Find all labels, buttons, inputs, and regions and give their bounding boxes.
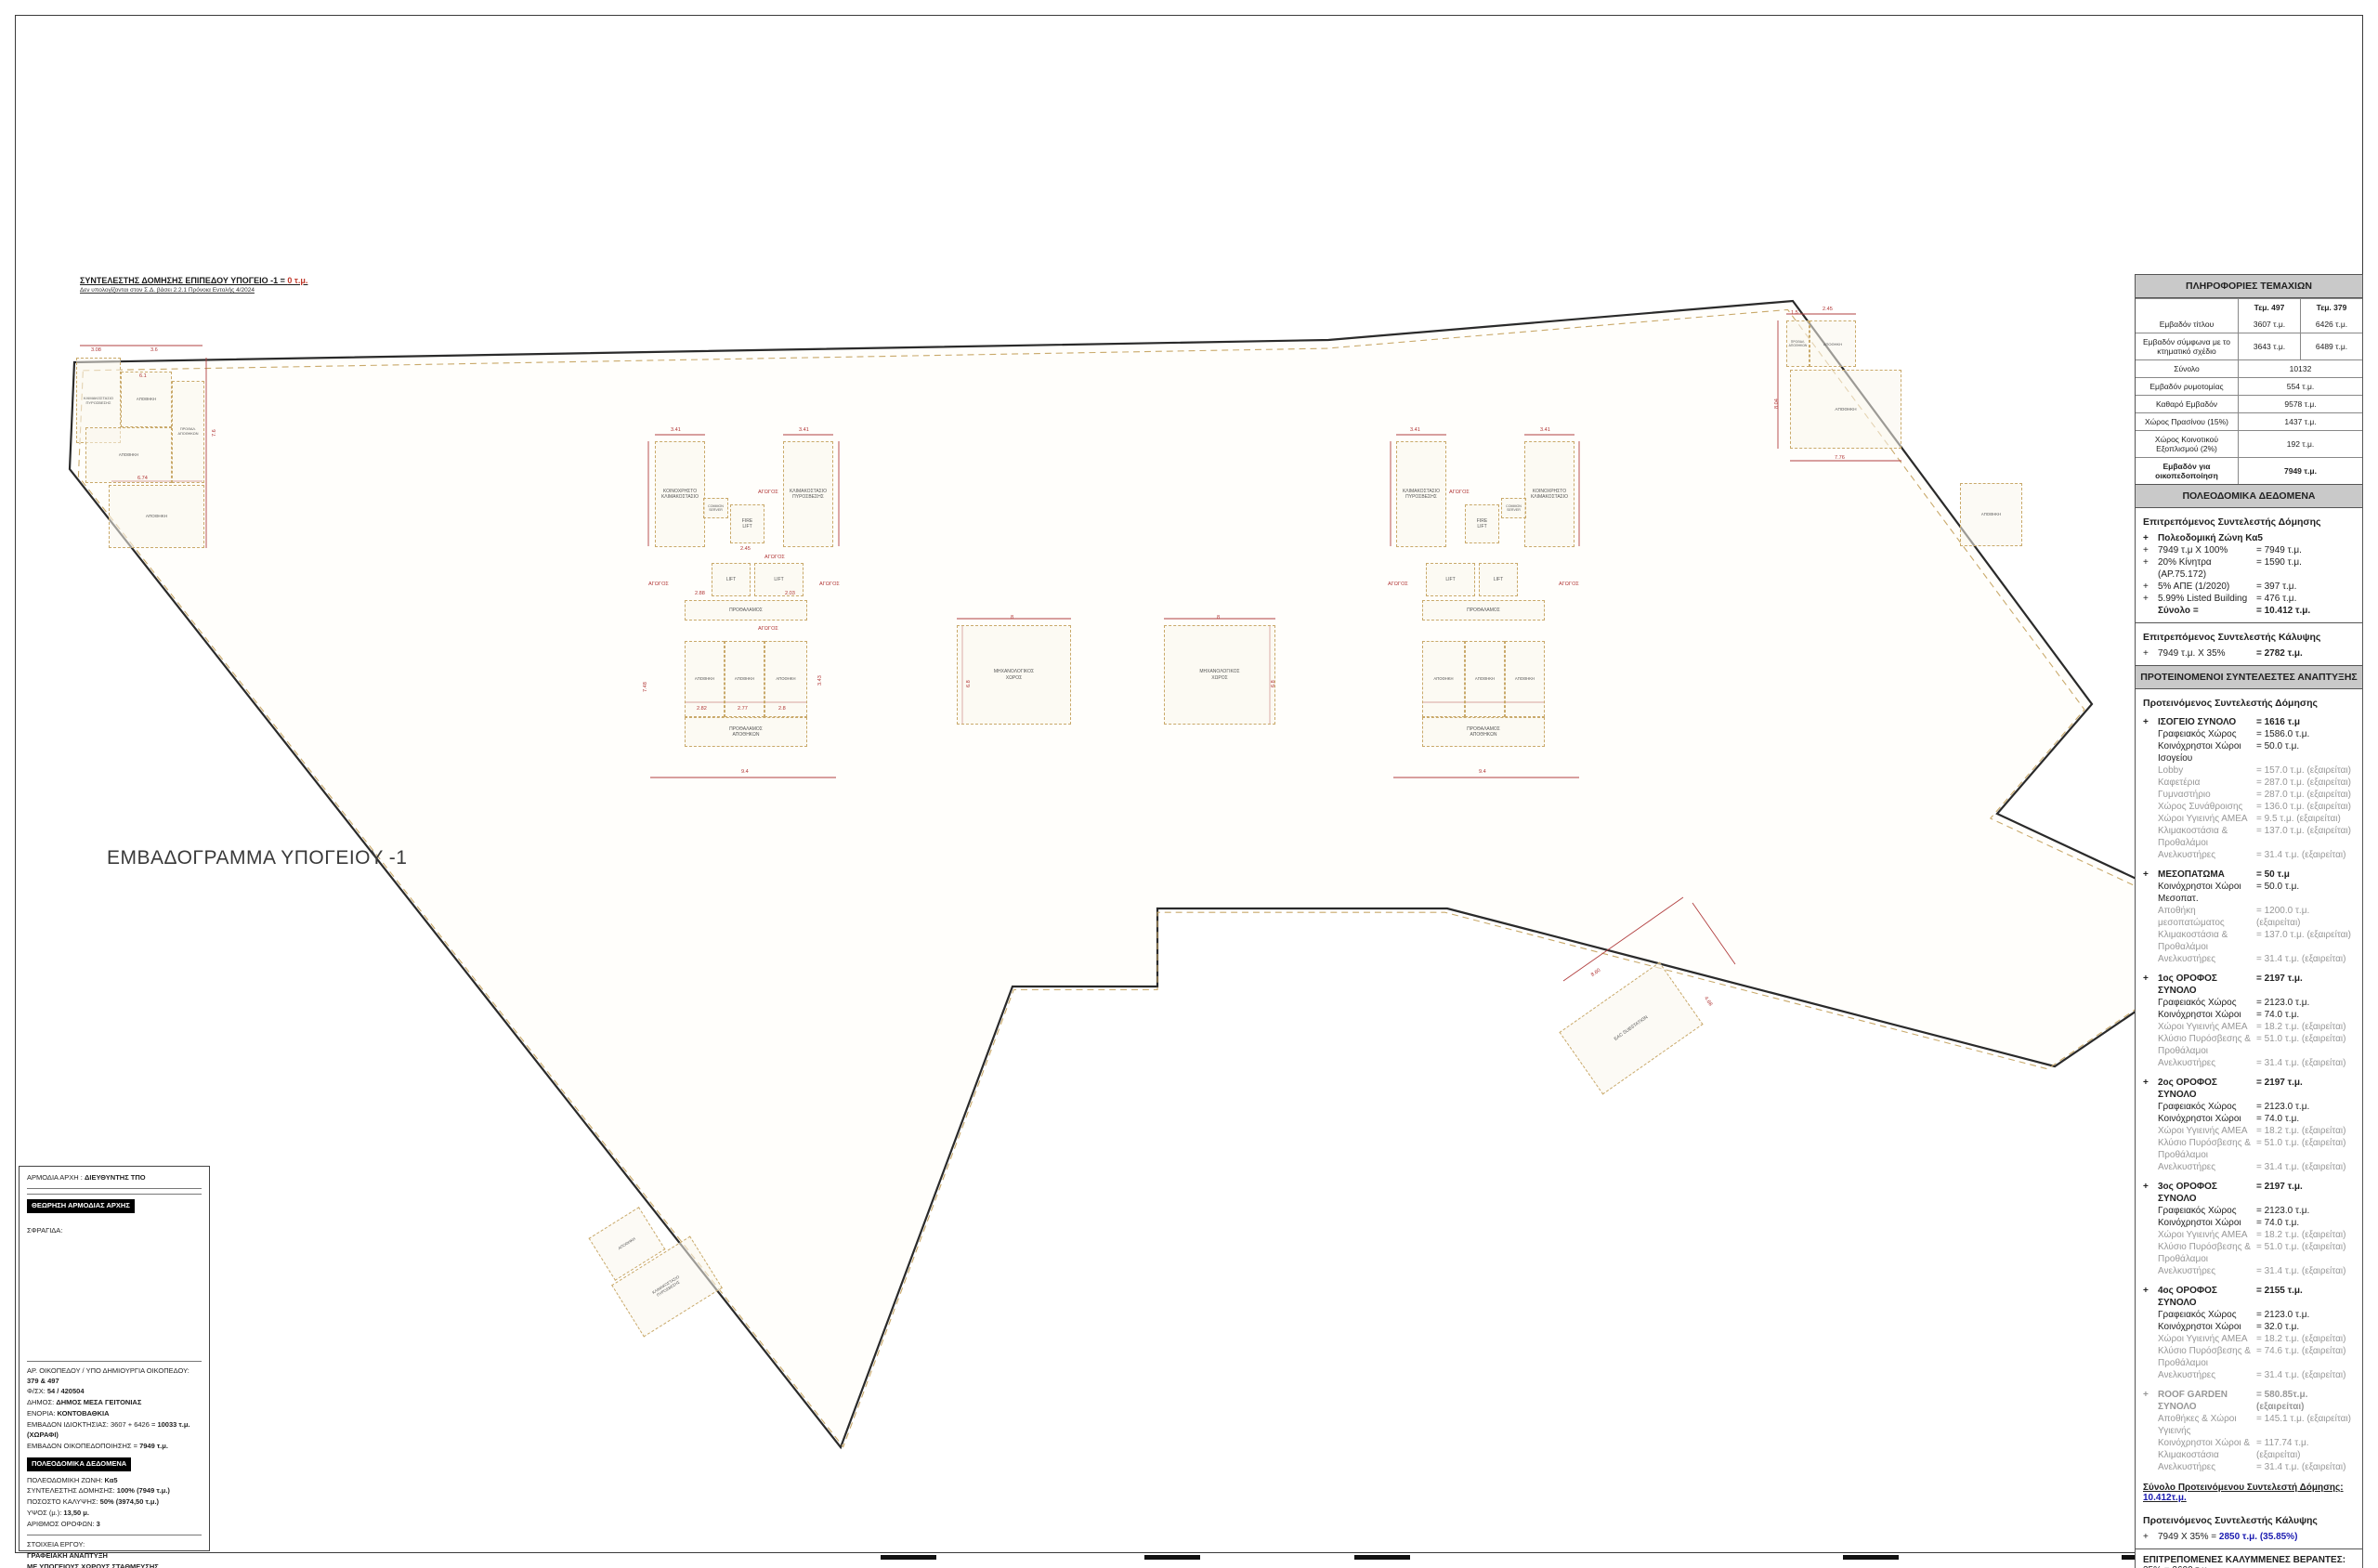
- floors-row: ΑΡΙΘΜΟΣ ΟΡΟΦΩΝ: 3: [27, 1520, 202, 1530]
- dim-label: 7.48: [643, 682, 648, 692]
- plan-room: ΠΡΟΘΑΛΑΜΟΣ: [1422, 600, 1545, 621]
- floor-sub-row: Γραφειακός Χώρος= 1586.0 τ.μ.: [2143, 728, 2355, 740]
- sub-label: Κοινόχρηστοι Χώροι: [2158, 1009, 2256, 1021]
- coeff-row: +7949 τ.μ Χ 100%= 7949 τ.μ.: [2143, 544, 2355, 556]
- sub-label: Κλύσιο Πυρόσβεσης & Προθάλαμοι: [2158, 1345, 2256, 1369]
- indent: [2143, 1265, 2158, 1277]
- sub-label: Κλιμακοστάσια & Προθαλάμοι: [2158, 825, 2256, 849]
- sub-label: Ανελκυστήρες: [2158, 1057, 2256, 1069]
- sub-label: Χώρος Συνάθροισης: [2158, 801, 2256, 813]
- height-row: ΥΨΟΣ (μ.): 13,50 μ.: [27, 1509, 202, 1519]
- coeff-label: 5% ΑΠΕ (1/2020): [2158, 581, 2256, 593]
- dim-label: 6.8: [966, 680, 972, 687]
- table-row: Καθαρό Εμβαδόν9578 τ.μ.: [2136, 395, 2362, 412]
- row-value-1: 3607 τ.μ.: [2239, 316, 2301, 333]
- plus-mark: +: [2143, 593, 2158, 605]
- plan-room: ΠΡΟΘΑΛ. ΑΠΟΘΗΚΩΝ: [1786, 320, 1810, 367]
- urban-rows: +7949 τ.μ Χ 100%= 7949 τ.μ.+20% Κίνητρα …: [2143, 544, 2355, 605]
- row-value-1: 3643 τ.μ.: [2239, 333, 2301, 359]
- sub-value: = 74.0 τ.μ.: [2256, 1113, 2355, 1125]
- proposed-coverage-title: Προτεινόμενος Συντελεστής Κάλυψης: [2143, 1515, 2355, 1526]
- plus-mark: +: [2143, 581, 2158, 593]
- floor-label: ROOF GARDEN ΣΥΝΟΛΟ: [2158, 1389, 2256, 1413]
- sub-value: = 145.1 τ.μ. (εξαιρείται): [2256, 1413, 2355, 1437]
- indent: [2143, 1205, 2158, 1217]
- floor-sub-row: Κοινόχρηστοι Χώροι= 74.0 τ.μ.: [2143, 1113, 2355, 1125]
- plan-room: ΑΠΟΘΗΚΗ: [1505, 641, 1545, 717]
- floor-sub-row: Κοινόχρηστοι Χώροι & Κλιμακοστάσια= 117.…: [2143, 1437, 2355, 1461]
- allowed-verandas-title: ΕΠΙΤΡΕΠΟΜΕΝΕΣ ΚΑΛΥΜΜΕΝΕΣ ΒΕΡΑΝΤΕΣ:: [2143, 1555, 2355, 1565]
- dim-label: ΑΓΩΓΟΣ: [764, 555, 785, 560]
- sub-value: = 31.4 τ.μ. (εξαιρείται): [2256, 1461, 2355, 1473]
- dim-label: 2.8: [778, 706, 786, 712]
- floor-sub-row: Γραφειακός Χώρος= 2123.0 τ.μ.: [2143, 997, 2355, 1009]
- proposed-coeff-header: ΠΡΟΤΕΙΝΟΜΕΝΟΙ ΣΥΝΤΕΛΕΣΤΕΣ ΑΝΑΠΤΥΞΗΣ: [2136, 666, 2362, 689]
- parcel-info-section: ΠΛΗΡΟΦΟΡΙΕΣ ΤΕΜΑΧΙΩΝ Τεμ. 497 Τεμ. 379 Ε…: [2135, 274, 2363, 485]
- floor-group: +3ος ΟΡΟΦΟΣ ΣΥΝΟΛΟ= 2197 τ.μ.Γραφειακός …: [2143, 1181, 2355, 1277]
- floor-label: 4ος ΟΡΟΦΟΣ ΣΥΝΟΛΟ: [2158, 1285, 2256, 1309]
- indent: [2143, 1413, 2158, 1437]
- floor-group-header: +ROOF GARDEN ΣΥΝΟΛΟ= 580.85τ.μ. (εξαιρεί…: [2143, 1389, 2355, 1413]
- sub-label: Χώροι Υγιεινής ΑΜΕΑ: [2158, 1021, 2256, 1033]
- plan-room: ΑΠΟΘΗΚΗ: [1960, 483, 2022, 546]
- floor-sub-row: Κοινόχρηστοι Χώροι= 74.0 τ.μ.: [2143, 1217, 2355, 1229]
- floor-sub-row: Κοινόχρηστοι Χώροι Ισογείου= 50.0 τ.μ.: [2143, 740, 2355, 764]
- dim-label: ΑΓΩΓΟΣ: [1559, 581, 1579, 587]
- indent: [2143, 997, 2158, 1009]
- table-row: Χώρος Πρασίνου (15%)1437 τ.μ.: [2136, 412, 2362, 430]
- dim-label: 8.04: [1774, 399, 1780, 409]
- plan-room: COMMON SERVER: [1501, 498, 1526, 518]
- coeff-value: = 1590 τ.μ.: [2256, 556, 2355, 581]
- floor-label: ΜΕΣΟΠΑΤΩΜΑ: [2158, 869, 2256, 881]
- plan-room: ΚΟΙΝΟΧΡΗΣΤΟ ΚΛΙΜΑΚΟΣΤΑΣΙΟ: [1524, 441, 1574, 547]
- zone-row: +Πολεοδομική Ζώνη Κα5: [2143, 532, 2355, 544]
- floor-group-header: +2ος ΟΡΟΦΟΣ ΣΥΝΟΛΟ= 2197 τ.μ.: [2143, 1077, 2355, 1101]
- sub-value: = 1586.0 τ.μ.: [2256, 728, 2355, 740]
- coeff-label: 5.99% Listed Building: [2158, 593, 2256, 605]
- row-label: Χώρος Πρασίνου (15%): [2136, 413, 2239, 430]
- sub-value: = 74.6 τ.μ. (εξαιρείται): [2256, 1345, 2355, 1369]
- sub-value: = 31.4 τ.μ. (εξαιρείται): [2256, 1265, 2355, 1277]
- dim-label: 9.4: [741, 769, 749, 775]
- indent: [2143, 1321, 2158, 1333]
- urban-data-header: ΠΟΛΕΟΔΟΜΙΚΑ ΔΕΔΟΜΕΝΑ: [2136, 485, 2362, 508]
- dim-label: 2.77: [738, 706, 748, 712]
- dim-label: 3.6: [150, 347, 158, 353]
- table-row: Εμβαδόν σύμφωνα με το κτηματικό σχέδιο36…: [2136, 333, 2362, 359]
- indent: [2143, 728, 2158, 740]
- row-value-2: 6426 τ.μ.: [2301, 316, 2362, 333]
- sub-label: Κοινόχρηστοι Χώροι: [2158, 1321, 2256, 1333]
- floor-label: 3ος ΟΡΟΦΟΣ ΣΥΝΟΛΟ: [2158, 1181, 2256, 1205]
- sub-value: = 287.0 τ.μ. (εξαιρείται): [2256, 777, 2355, 789]
- sub-value: = 51.0 τ.μ. (εξαιρείται): [2256, 1137, 2355, 1161]
- floor-total: = 2197 τ.μ.: [2256, 973, 2355, 997]
- indent: [2143, 1161, 2158, 1173]
- dim-label: 8: [1217, 615, 1220, 621]
- dim-label: 1.5: [1791, 310, 1798, 316]
- sub-label: Γραφειακός Χώρος: [2158, 728, 2256, 740]
- floor-sub-row: Κλύσιο Πυρόσβεσης & Προθάλαμοι= 51.0 τ.μ…: [2143, 1241, 2355, 1265]
- row-value: 7949 τ.μ.: [2239, 458, 2362, 484]
- indent: [2143, 801, 2158, 813]
- coeff-label: 20% Κίνητρα (ΑΡ.75.172): [2158, 556, 2256, 581]
- floor-total: = 1616 τ.μ: [2256, 716, 2355, 728]
- dim-label: ΑΓΩΓΟΣ: [1388, 581, 1408, 587]
- plus-mark: +: [2143, 869, 2158, 881]
- floor-group-header: +ΙΣΟΓΕΙΟ ΣΥΝΟΛΟ= 1616 τ.μ: [2143, 716, 2355, 728]
- indent: [2143, 1333, 2158, 1345]
- floor-group: +ΜΕΣΟΠΑΤΩΜΑ= 50 τ.μΚοινόχρηστοι Χώροι Με…: [2143, 869, 2355, 965]
- sub-label: Χώροι Υγιεινής ΑΜΕΑ: [2158, 1125, 2256, 1137]
- plus-mark: +: [2143, 1181, 2158, 1205]
- dim-label: 6.8: [1271, 680, 1276, 687]
- coeff-label: 7949 τ.μ Χ 100%: [2158, 544, 2256, 556]
- col-tem-497: Τεμ. 497: [2239, 299, 2301, 316]
- sub-label: Χώροι Υγιεινής ΑΜΕΑ: [2158, 1229, 2256, 1241]
- floor-sub-row: Ανελκυστήρες= 31.4 τ.μ. (εξαιρείται): [2143, 1369, 2355, 1381]
- indent: [2143, 1241, 2158, 1265]
- row-value: 192 τ.μ.: [2239, 431, 2362, 457]
- floor-group-header: +1ος ΟΡΟΦΟΣ ΣΥΝΟΛΟ= 2197 τ.μ.: [2143, 973, 2355, 997]
- floor-sub-row: Ανελκυστήρες= 31.4 τ.μ. (εξαιρείται): [2143, 849, 2355, 861]
- floor-total: = 2197 τ.μ.: [2256, 1077, 2355, 1101]
- title-block: ΑΡΜΟΔΙΑ ΑΡΧΗ : ΔΙΕΥΘΥΝΤΗΣ ΤΠΟ ΘΕΩΡΗΣΗ ΑΡ…: [19, 1166, 210, 1551]
- sub-label: Γυμναστήριο: [2158, 789, 2256, 801]
- table-row: Εμβαδόν ρυμοτομίας554 τ.μ.: [2136, 377, 2362, 395]
- plan-room: LIFT: [712, 563, 751, 596]
- parcel-table-colheads: Τεμ. 497 Τεμ. 379: [2136, 298, 2362, 316]
- plan-room: ΑΠΟΘΗΚΗ: [1465, 641, 1505, 717]
- plan-room: ΠΡΟΘΑΛΑΜΟΣ: [685, 600, 807, 621]
- municipality-row: ΔΗΜΟΣ: ΔΗΜΟΣ ΜΕΣΑ ΓΕΙΤΟΝΙΑΣ: [27, 1398, 202, 1408]
- fold-mark: [881, 1555, 936, 1560]
- sub-value: = 9.5 τ.μ. (εξαιρείται): [2256, 813, 2355, 825]
- row-value: 554 τ.μ.: [2239, 378, 2362, 395]
- sub-label: Ανελκυστήρες: [2158, 1461, 2256, 1473]
- indent: [2143, 1137, 2158, 1161]
- coeff-row: +5% ΑΠΕ (1/2020)= 397 τ.μ.: [2143, 581, 2355, 593]
- proposed-coeff-section: ΠΡΟΤΕΙΝΟΜΕΝΟΙ ΣΥΝΤΕΛΕΣΤΕΣ ΑΝΑΠΤΥΞΗΣ Προτ…: [2135, 665, 2363, 1549]
- indent: [2143, 1309, 2158, 1321]
- floor-sub-row: Κλύσιο Πυρόσβεσης & Προθάλαμοι= 74.6 τ.μ…: [2143, 1345, 2355, 1369]
- plan-room: ΠΡΟΘΑΛΑΜΟΣ ΑΠΟΘΗΚΩΝ: [685, 717, 807, 747]
- urban-total-row: Σύνολο = = 10.412 τ.μ.: [2143, 605, 2355, 617]
- sub-value: = 50.0 τ.μ.: [2256, 740, 2355, 764]
- indent: [2143, 1033, 2158, 1057]
- dim-label: 7.6: [212, 429, 217, 437]
- indent: [2143, 1437, 2158, 1461]
- indent: [2143, 1461, 2158, 1473]
- info-panel: ΠΛΗΡΟΦΟΡΙΕΣ ΤΕΜΑΧΙΩΝ Τεμ. 497 Τεμ. 379 Ε…: [2135, 275, 2363, 1568]
- dim-label: 3.08: [91, 347, 101, 353]
- sub-value: = 137.0 τ.μ. (εξαιρείται): [2256, 825, 2355, 849]
- floor-groups: +ΙΣΟΓΕΙΟ ΣΥΝΟΛΟ= 1616 τ.μΓραφειακός Χώρο…: [2143, 716, 2355, 1473]
- plan-room: FIRE LIFT: [730, 504, 764, 543]
- sub-value: = 117.74 τ.μ. (εξαιρείται): [2256, 1437, 2355, 1461]
- dim-label: ΑΓΩΓΟΣ: [648, 581, 669, 587]
- sub-value: = 2123.0 τ.μ.: [2256, 997, 2355, 1009]
- indent: [2143, 825, 2158, 849]
- floor-sub-row: Ανελκυστήρες= 31.4 τ.μ. (εξαιρείται): [2143, 1265, 2355, 1277]
- coeff-row: ΣΥΝΤΕΛΕΣΤΗΣ ΔΟΜΗΣΗΣ: 100% (7949 τ.μ.): [27, 1486, 202, 1496]
- plan-room: ΑΠΟΘΗΚΗ: [1422, 641, 1465, 717]
- table-row: Εμβαδόν για οικοπεδοποίηση7949 τ.μ.: [2136, 457, 2362, 484]
- ownership-area-row: ΕΜΒΑΔΟΝ ΙΔΙΟΚΤΗΣΙΑΣ: 3607 + 6426 = 10033…: [27, 1420, 202, 1441]
- row-label: Σύνολο: [2136, 360, 2239, 377]
- verandas-section: ΕΠΙΤΡΕΠΟΜΕΝΕΣ ΚΑΛΥΜΜΕΝΕΣ ΒΕΡΑΝΤΕΣ: 25% =…: [2135, 1548, 2363, 1568]
- floor-sub-row: Αποθήκη μεσοπατώματος= 1200.0 τ.μ. (εξαι…: [2143, 905, 2355, 929]
- floor-sub-row: Χώροι Υγιεινής ΑΜΕΑ= 18.2 τ.μ. (εξαιρείτ…: [2143, 1229, 2355, 1241]
- floor-group: +ΙΣΟΓΕΙΟ ΣΥΝΟΛΟ= 1616 τ.μΓραφειακός Χώρο…: [2143, 716, 2355, 861]
- floor-sub-row: Κλιμακοστάσια & Προθαλάμοι= 137.0 τ.μ. (…: [2143, 825, 2355, 849]
- plot-row: ΑΡ. ΟΙΚΟΠΕΔΟΥ / ΥΠΟ ΔΗΜΙΟΥΡΓΙΑ ΟΙΚΟΠΕΔΟΥ…: [27, 1366, 202, 1387]
- indent: [2143, 1101, 2158, 1113]
- plan-room: ΑΠΟΘΗΚΗ: [764, 641, 807, 717]
- note-zero-value: 0 τ.μ.: [287, 276, 307, 285]
- dim-label: 2.45: [740, 546, 751, 552]
- indent: [2143, 1057, 2158, 1069]
- sub-value: = 136.0 τ.μ. (εξαιρείται): [2256, 801, 2355, 813]
- sub-value: = 157.0 τ.μ. (εξαιρείται): [2256, 764, 2355, 777]
- sub-value: = 18.2 τ.μ. (εξαιρείται): [2256, 1229, 2355, 1241]
- plan-room: ΚΛΙΜΑΚΟΣΤΑΣΙΟ ΠΥΡΟΣΒΕΣΗΣ: [783, 441, 833, 547]
- sub-label: Κοινόχρηστοι Χώροι Ισογείου: [2158, 740, 2256, 764]
- dim-label: 3.43: [817, 675, 823, 686]
- dim-label: 2.82: [697, 706, 707, 712]
- floor-total: = 2155 τ.μ.: [2256, 1285, 2355, 1309]
- allowed-coverage-section: Επιτρεπόμενος Συντελεστής Κάλυψης + 7949…: [2135, 622, 2363, 666]
- plan-room: ΑΠΟΘΗΚΗ: [109, 485, 204, 548]
- table-row: Σύνολο10132: [2136, 359, 2362, 377]
- site-boundary: [70, 301, 2252, 1447]
- sub-value: = 31.4 τ.μ. (εξαιρείται): [2256, 1161, 2355, 1173]
- stamp-label: ΣΦΡΑΓΙΔΑ:: [27, 1226, 202, 1236]
- row-value: 10132: [2239, 360, 2362, 377]
- floor-total: = 50 τ.μ: [2256, 869, 2355, 881]
- floor-group: +ROOF GARDEN ΣΥΝΟΛΟ= 580.85τ.μ. (εξαιρεί…: [2143, 1389, 2355, 1473]
- indent: [2143, 1113, 2158, 1125]
- table-row: Χώρος Κοινοτικού Εξοπλισμού (2%)192 τ.μ.: [2136, 430, 2362, 457]
- indent: [2143, 1345, 2158, 1369]
- drawing-sheet: ΚΟΙΝΟΧΡΗΣΤΟ ΚΛΙΜΑΚΟΣΤΑΣΙΟΚΛΙΜΑΚΟΣΤΑΣΙΟ Π…: [0, 0, 2378, 1568]
- plan-room: ΠΡΟΘΑΛΑΜΟΣ ΑΠΟΘΗΚΩΝ: [1422, 717, 1545, 747]
- indent: [2143, 1009, 2158, 1021]
- sub-value: = 51.0 τ.μ. (εξαιρείται): [2256, 1241, 2355, 1265]
- sub-label: Καφετέρια: [2158, 777, 2256, 789]
- note-line2: Δεν υπολογίζονται στον Σ.Δ. βάσει 2.2.1 …: [80, 287, 307, 294]
- urban-data-bar: ΠΟΛΕΟΔΟΜΙΚΑ ΔΕΔΟΜΕΝΑ: [27, 1457, 131, 1471]
- indent: [2143, 1125, 2158, 1137]
- drawing-title: ΕΜΒΑΔΟΓΡΑΜΜΑ ΥΠΟΓΕΙΟΥ -1: [107, 847, 407, 869]
- floor-sub-row: Ανελκυστήρες= 31.4 τ.μ. (εξαιρείται): [2143, 1057, 2355, 1069]
- coeff-value: = 7949 τ.μ.: [2256, 544, 2355, 556]
- sub-value: = 1200.0 τ.μ. (εξαιρείται): [2256, 905, 2355, 929]
- floor-group: +2ος ΟΡΟΦΟΣ ΣΥΝΟΛΟ= 2197 τ.μ.Γραφειακός …: [2143, 1077, 2355, 1173]
- indent: [2143, 849, 2158, 861]
- sub-label: Γραφειακός Χώρος: [2158, 1101, 2256, 1113]
- proposed-total-row: Σύνολο Προτεινόμενου Συντελεστή Δόμησης:…: [2143, 1483, 2355, 1503]
- floor-sub-row: Κλιμακοστάσια & Προθαλάμοι= 137.0 τ.μ. (…: [2143, 929, 2355, 953]
- plan-room: LIFT: [754, 563, 804, 596]
- plus-mark: +: [2143, 1389, 2158, 1413]
- sub-value: = 2123.0 τ.μ.: [2256, 1309, 2355, 1321]
- sub-label: Κλύσιο Πυρόσβεσης & Προθάλαμοι: [2158, 1137, 2256, 1161]
- sub-label: Κοινόχρηστοι Χώροι: [2158, 1217, 2256, 1229]
- plan-room: COMMON SERVER: [703, 498, 728, 518]
- floor-total: = 580.85τ.μ. (εξαιρείται): [2256, 1389, 2355, 1413]
- sub-label: Γραφειακός Χώρος: [2158, 1309, 2256, 1321]
- floor-group-header: +4ος ΟΡΟΦΟΣ ΣΥΝΟΛΟ= 2155 τ.μ.: [2143, 1285, 2355, 1309]
- dim-label: 3.41: [671, 427, 681, 433]
- floor-group: +1ος ΟΡΟΦΟΣ ΣΥΝΟΛΟ= 2197 τ.μ.Γραφειακός …: [2143, 973, 2355, 1069]
- sub-label: Αποθήκες & Χώροι Υγιεινής: [2158, 1413, 2256, 1437]
- sub-label: Κοινόχρηστοι Χώροι: [2158, 1113, 2256, 1125]
- plan-room: FIRE LIFT: [1465, 504, 1499, 543]
- sub-label: Ανελκυστήρες: [2158, 1369, 2256, 1381]
- dim-label: 3.41: [799, 427, 809, 433]
- floor-sub-row: Κλύσιο Πυρόσβεσης & Προθάλαμοι= 51.0 τ.μ…: [2143, 1137, 2355, 1161]
- floor-sub-row: Κοινόχρηστοι Χώροι= 32.0 τ.μ.: [2143, 1321, 2355, 1333]
- indent: [2143, 777, 2158, 789]
- sub-value: = 31.4 τ.μ. (εξαιρείται): [2256, 953, 2355, 965]
- fsx-row: Φ/ΣΧ: 54 / 420504: [27, 1387, 202, 1397]
- plan-room: LIFT: [1426, 563, 1475, 596]
- row-label: Καθαρό Εμβαδόν: [2136, 396, 2239, 412]
- row-label: Εμβαδόν σύμφωνα με το κτηματικό σχέδιο: [2136, 333, 2239, 359]
- sub-label: Χώροι Υγιεινής ΑΜΕΑ: [2158, 813, 2256, 825]
- floor-sub-row: Κοινόχρηστοι Χώροι= 74.0 τ.μ.: [2143, 1009, 2355, 1021]
- allowed-building-coeff-title: Επιτρεπόμενος Συντελεστής Δόμησης: [2143, 516, 2355, 528]
- plan-room: ΑΠΟΘΗΚΗ: [1810, 320, 1856, 367]
- sub-label: Χώροι Υγιεινής ΑΜΕΑ: [2158, 1333, 2256, 1345]
- floor-sub-row: Χώροι Υγιεινής ΑΜΕΑ= 18.2 τ.μ. (εξαιρείτ…: [2143, 1333, 2355, 1345]
- indent: [2143, 929, 2158, 953]
- coverage-row: ΠΟΣΟΣΤΟ ΚΑΛΥΨΗΣ: 50% (3974,50 τ.μ.): [27, 1497, 202, 1508]
- plan-room: LIFT: [1479, 563, 1518, 596]
- plan-room: ΜΗΧΑΝΟΛΟΓΙΚΟΣ ΧΩΡΟΣ: [957, 625, 1071, 725]
- coeff-row: +5.99% Listed Building= 476 τ.μ.: [2143, 593, 2355, 605]
- indent: [2143, 1229, 2158, 1241]
- sub-value: = 18.2 τ.μ. (εξαιρείται): [2256, 1333, 2355, 1345]
- allowed-coverage-title: Επιτρεπόμενος Συντελεστής Κάλυψης: [2143, 632, 2355, 643]
- sub-value: = 31.4 τ.μ. (εξαιρείται): [2256, 1057, 2355, 1069]
- floor-sub-row: Κοινόχρηστοι Χώροι Μεσοπατ.= 50.0 τ.μ.: [2143, 881, 2355, 905]
- sub-label: Lobby: [2158, 764, 2256, 777]
- indent: [2143, 789, 2158, 801]
- sub-label: Κλύσιο Πυρόσβεσης & Προθάλαμοι: [2158, 1033, 2256, 1057]
- floor-total: = 2197 τ.μ.: [2256, 1181, 2355, 1205]
- row-label: Εμβαδόν για οικοπεδοποίηση: [2136, 458, 2239, 484]
- proposed-coverage-row: + 7949 Χ 35% = 2850 τ.μ. (35.85%): [2143, 1531, 2355, 1543]
- parish-row: ΕΝΟΡΙΑ: ΚΟΝΤΟΒΑΘΚΙΑ: [27, 1409, 202, 1419]
- fold-mark: [1354, 1555, 1410, 1560]
- row-label: Εμβαδόν ρυμοτομίας: [2136, 378, 2239, 395]
- floor-sub-row: Καφετέρια= 287.0 τ.μ. (εξαιρείται): [2143, 777, 2355, 789]
- dim-label: ΑΓΩΓΟΣ: [1449, 490, 1470, 495]
- dim-label: ΑΓΩΓΟΣ: [758, 626, 778, 632]
- indent: [2143, 1369, 2158, 1381]
- plan-room: ΜΗΧΑΝΟΛΟΓΙΚΟΣ ΧΩΡΟΣ: [1164, 625, 1275, 725]
- plus-mark: +: [2143, 556, 2158, 581]
- floor-sub-row: Χώρος Συνάθροισης= 136.0 τ.μ. (εξαιρείτα…: [2143, 801, 2355, 813]
- note-line1: ΣΥΝΤΕΛΕΣΤΗΣ ΔΟΜΗΣΗΣ ΕΠΙΠΕΔΟΥ ΥΠΟΓΕΙΟ -1 …: [80, 276, 307, 285]
- plot-area-row: ΕΜΒΑΔΟΝ ΟΙΚΟΠΕΔΟΠΟΙΗΣΗΣ = 7949 τ.μ.: [27, 1442, 202, 1452]
- floor-label: 1ος ΟΡΟΦΟΣ ΣΥΝΟΛΟ: [2158, 973, 2256, 997]
- plus-mark: +: [2143, 544, 2158, 556]
- sub-value: = 2123.0 τ.μ.: [2256, 1205, 2355, 1217]
- dim-label: 2.45: [1823, 307, 1833, 312]
- sub-label: Κοινόχρηστοι Χώροι Μεσοπατ.: [2158, 881, 2256, 905]
- sub-label: Κοινόχρηστοι Χώροι & Κλιμακοστάσια: [2158, 1437, 2256, 1461]
- indent: [2143, 1021, 2158, 1033]
- floor-sub-row: Ανελκυστήρες= 31.4 τ.μ. (εξαιρείται): [2143, 953, 2355, 965]
- sub-value: = 51.0 τ.μ. (εξαιρείται): [2256, 1033, 2355, 1057]
- sub-label: Γραφειακός Χώρος: [2158, 997, 2256, 1009]
- floor-sub-row: Γραφειακός Χώρος= 2123.0 τ.μ.: [2143, 1101, 2355, 1113]
- dim-label: 6.74: [137, 476, 148, 481]
- floor-sub-row: Αποθήκες & Χώροι Υγιεινής= 145.1 τ.μ. (ε…: [2143, 1413, 2355, 1437]
- allowed-coverage-row: + 7949 τ.μ. Χ 35% = 2782 τ.μ.: [2143, 647, 2355, 660]
- sub-value: = 74.0 τ.μ.: [2256, 1217, 2355, 1229]
- urban-data-section: ΠΟΛΕΟΔΟΜΙΚΑ ΔΕΔΟΜΕΝΑ Επιτρεπόμενος Συντε…: [2135, 484, 2363, 623]
- fold-mark: [1843, 1555, 1899, 1560]
- coeff-value: = 397 τ.μ.: [2256, 581, 2355, 593]
- dim-label: 2.03: [785, 591, 795, 596]
- indent: [2143, 764, 2158, 777]
- sub-value: = 18.2 τ.μ. (εξαιρείται): [2256, 1125, 2355, 1137]
- table-row: Εμβαδόν τίτλου3607 τ.μ.6426 τ.μ.: [2136, 316, 2362, 333]
- sub-value: = 2123.0 τ.μ.: [2256, 1101, 2355, 1113]
- coeff-row: +20% Κίνητρα (ΑΡ.75.172)= 1590 τ.μ.: [2143, 556, 2355, 581]
- sub-value: = 31.4 τ.μ. (εξαιρείται): [2256, 1369, 2355, 1381]
- plus-mark: +: [2143, 716, 2158, 728]
- floor-sub-row: Γραφειακός Χώρος= 2123.0 τ.μ.: [2143, 1309, 2355, 1321]
- dim-label: 7.76: [1835, 455, 1845, 461]
- floor-group-header: +ΜΕΣΟΠΑΤΩΜΑ= 50 τ.μ: [2143, 869, 2355, 881]
- floor-sub-row: Lobby= 157.0 τ.μ. (εξαιρείται): [2143, 764, 2355, 777]
- dim-label: ΑΓΩΓΟΣ: [758, 490, 778, 495]
- floor-group-header: +3ος ΟΡΟΦΟΣ ΣΥΝΟΛΟ= 2197 τ.μ.: [2143, 1181, 2355, 1205]
- plan-room: ΚΟΙΝΟΧΡΗΣΤΟ ΚΛΙΜΑΚΟΣΤΑΣΙΟ: [655, 441, 705, 547]
- floor-sub-row: Χώροι Υγιεινής ΑΜΕΑ= 18.2 τ.μ. (εξαιρείτ…: [2143, 1021, 2355, 1033]
- sub-label: Ανελκυστήρες: [2158, 953, 2256, 965]
- dim-label: 6.1: [139, 373, 147, 379]
- plan-room: ΠΡΟΘΑΛ. ΑΠΟΘΗΚΩΝ: [172, 381, 204, 483]
- row-label: Εμβαδόν τίτλου: [2136, 316, 2239, 333]
- sub-label: Ανελκυστήρες: [2158, 849, 2256, 861]
- sub-label: Ανελκυστήρες: [2158, 1161, 2256, 1173]
- floor-label: 2ος ΟΡΟΦΟΣ ΣΥΝΟΛΟ: [2158, 1077, 2256, 1101]
- site-plan-svg: [0, 0, 2378, 1568]
- indent: [2143, 953, 2158, 965]
- plan-room: ΑΠΟΘΗΚΗ: [85, 427, 172, 483]
- plan-room: ΑΠΟΘΗΚΗ: [1790, 370, 1901, 449]
- zone-row: ΠΟΛΕΟΔΟΜΙΚΗ ΖΩΝΗ: Κα5: [27, 1476, 202, 1486]
- project-label: ΣΤΟΙΧΕΙΑ ΕΡΓΟΥ:: [27, 1540, 202, 1550]
- dim-label: 8: [1011, 615, 1013, 621]
- proposed-building-coeff-title: Προτεινόμενος Συντελεστής Δόμησης: [2143, 698, 2355, 709]
- approval-bar: ΘΕΩΡΗΣΗ ΑΡΜΟΔΙΑΣ ΑΡΧΗΣ: [27, 1199, 135, 1213]
- sub-value: = 31.4 τ.μ. (εξαιρείται): [2256, 849, 2355, 861]
- floor-sub-row: Γυμναστήριο= 287.0 τ.μ. (εξαιρείται): [2143, 789, 2355, 801]
- floor-sub-row: Χώροι Υγιεινής ΑΜΕΑ= 9.5 τ.μ. (εξαιρείτα…: [2143, 813, 2355, 825]
- sub-value: = 50.0 τ.μ.: [2256, 881, 2355, 905]
- floor-sub-row: Γραφειακός Χώρος= 2123.0 τ.μ.: [2143, 1205, 2355, 1217]
- dim-label: ΑΓΩΓΟΣ: [819, 581, 840, 587]
- row-label: Χώρος Κοινοτικού Εξοπλισμού (2%): [2136, 431, 2239, 457]
